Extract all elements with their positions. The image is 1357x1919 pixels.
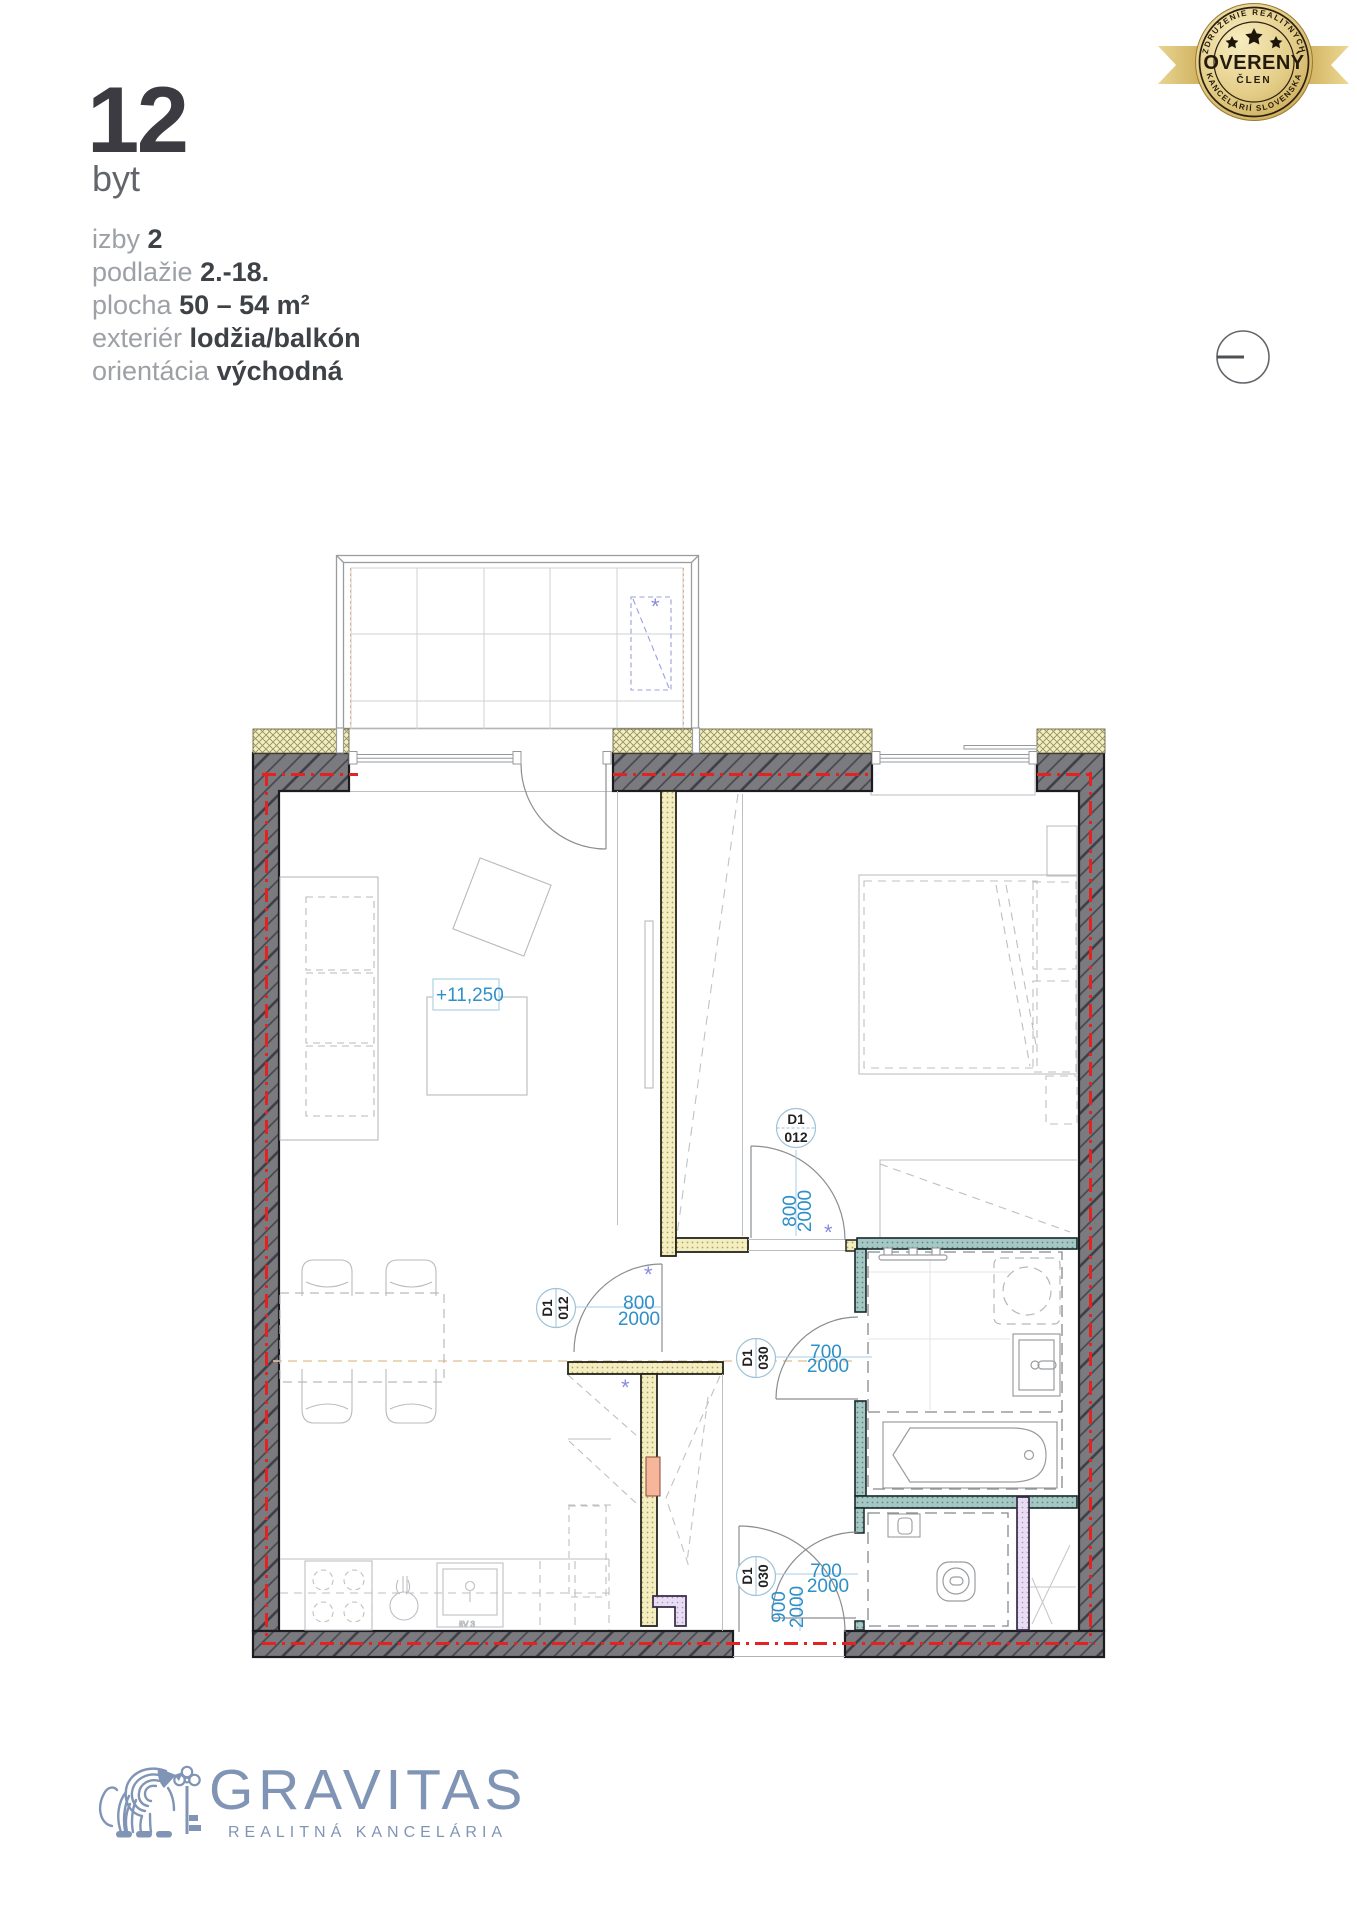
- svg-text:šV 3: šV 3: [459, 1620, 476, 1629]
- svg-text:GRAVITAS: GRAVITAS: [209, 1758, 527, 1822]
- svg-text:D1: D1: [740, 1567, 755, 1585]
- svg-text:*: *: [644, 1262, 653, 1287]
- svg-text:D1: D1: [787, 1112, 805, 1127]
- svg-text:*: *: [621, 1375, 630, 1400]
- svg-text:2000: 2000: [807, 1356, 849, 1377]
- svg-text:+11,250: +11,250: [436, 985, 504, 1006]
- svg-text:2000: 2000: [787, 1586, 808, 1628]
- svg-text:D1: D1: [740, 1349, 755, 1367]
- svg-text:030: 030: [755, 1564, 771, 1588]
- svg-text:030: 030: [755, 1346, 771, 1370]
- svg-text:D1: D1: [540, 1299, 555, 1317]
- svg-text:*: *: [651, 594, 660, 619]
- svg-text:2000: 2000: [807, 1576, 849, 1597]
- svg-text:012: 012: [555, 1296, 571, 1320]
- svg-text:012: 012: [784, 1129, 808, 1145]
- svg-text:*: *: [824, 1220, 833, 1245]
- svg-text:2000: 2000: [618, 1309, 660, 1330]
- svg-text:REALITNÁ KANCELÁRIA: REALITNÁ KANCELÁRIA: [228, 1822, 507, 1841]
- svg-text:2000: 2000: [795, 1190, 816, 1232]
